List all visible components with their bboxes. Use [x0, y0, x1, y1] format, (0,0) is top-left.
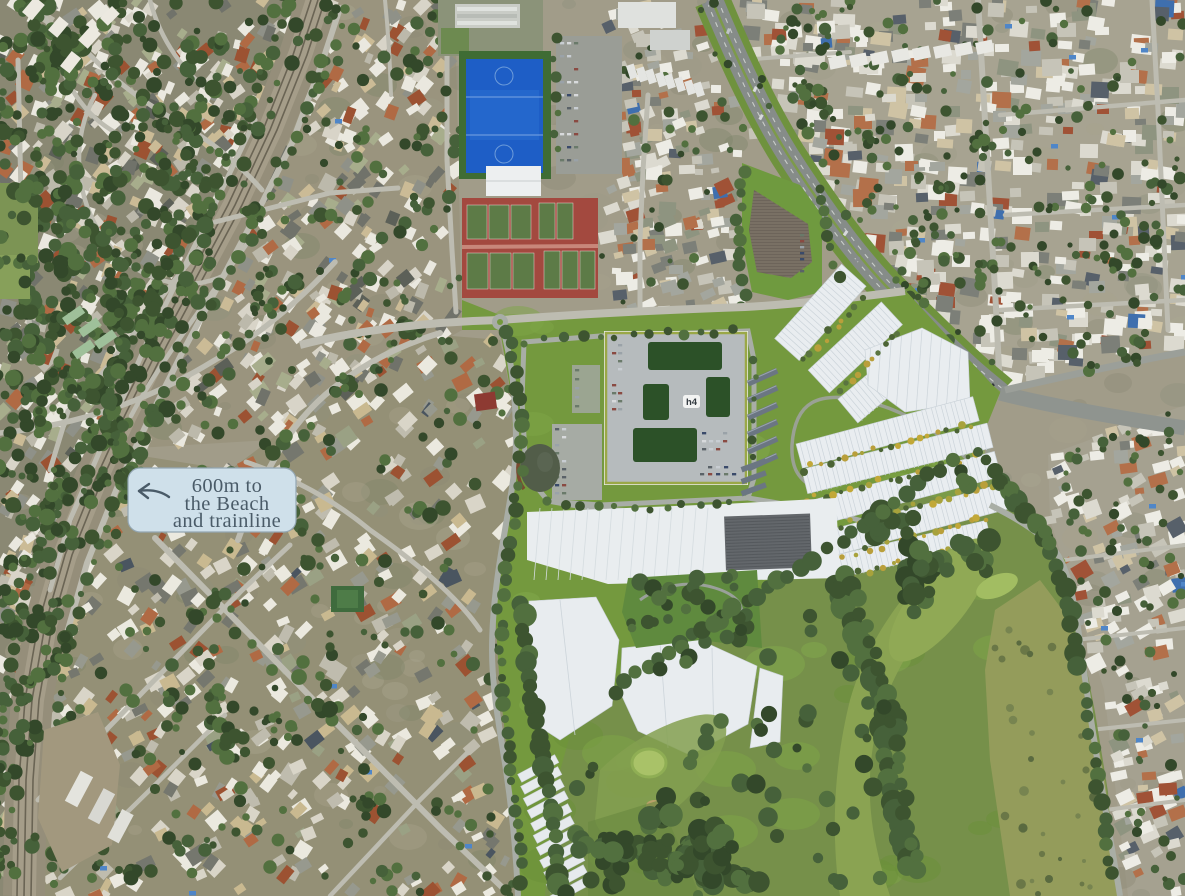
- svg-text:h4: h4: [686, 397, 698, 408]
